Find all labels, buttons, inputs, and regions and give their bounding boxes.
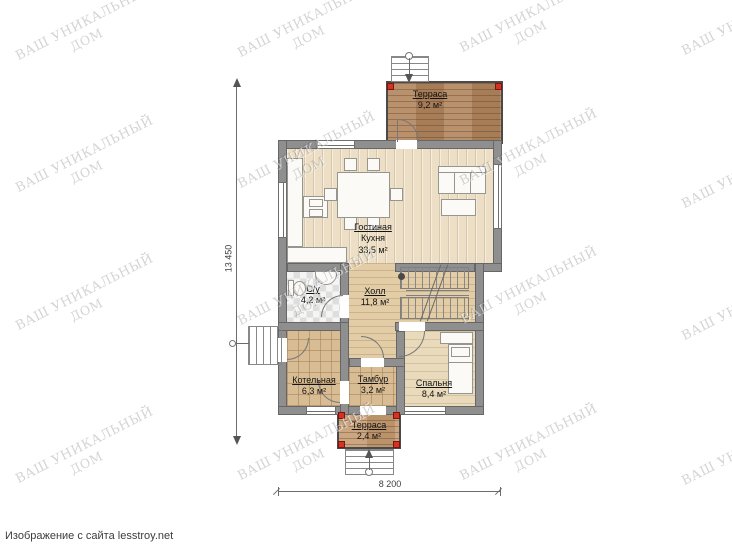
room-label-living: Гостиная Кухня 33,5 м² [325,222,421,256]
sofa-divider [454,172,455,193]
watermark-line1: ВАШ УНИКАЛЬНЫЙ [679,0,732,59]
room-label-terrace-bottom: Терраса 2,4 м² [339,420,399,443]
watermark-line1: ВАШ УНИКАЛЬНЫЙ [679,406,732,489]
staircase-hall-newel [398,273,405,280]
watermark: ВАШ УНИКАЛЬНЫЙДОМ [679,0,732,74]
room-label-hall: Холл 11,8 м² [347,286,403,309]
room-name: Гостиная [325,222,421,233]
room-name: С/у [286,284,340,295]
dimension-arrow-down [233,436,241,445]
watermark-line2: ДОМ [21,1,153,78]
room-area: 9,2 м² [390,100,470,111]
watermark-line1: ВАШ УНИКАЛЬНЫЙ [13,404,156,487]
window-boiler-bottom [306,406,336,415]
watermark: ВАШ УНИКАЛЬНЫЙДОМ [679,135,732,227]
coffee-table [441,199,476,216]
watermark-line1: ВАШ УНИКАЛЬНЫЙ [235,0,378,61]
room-name: Тамбур [347,374,399,385]
staircase-left-post [229,340,236,347]
staircase-top-arrowhead [405,74,413,83]
watermark: ВАШ УНИКАЛЬНЫЙДОМ [13,0,152,79]
watermark: ВАШ УНИКАЛЬНЫЙДОМ [457,0,596,71]
room-area: 11,8 м² [347,297,403,308]
watermark-line1: ВАШ УНИКАЛЬНЫЙ [13,251,156,334]
watermark-line2: ДОМ [243,0,375,76]
watermark-line2: ДОМ [687,0,732,74]
sofa-divider [470,172,471,193]
room-area: 33,5 м² [325,245,421,256]
staircase-top-arrow-line [409,58,410,75]
kitchen-sink-bowl [309,199,323,207]
room-area: 6,3 м² [286,386,342,397]
door-vestibule-bottom-opening [360,406,386,415]
sofa [438,166,486,194]
dimension-line-horizontal [278,491,501,492]
watermark: ВАШ УНИКАЛЬНЫЙДОМ [457,407,596,499]
window-bedroom-bottom [404,406,446,415]
chair [367,158,380,171]
source-caption: Изображение с сайта lesstroy.net [5,530,173,542]
corner-marker [338,412,345,419]
room-label-terrace-top: Терраса 9,2 м² [390,89,470,112]
room-area: 2,4 м² [339,431,399,442]
wall-right-lower [475,263,484,415]
watermark: ВАШ УНИКАЛЬНЫЙДОМ [13,257,152,349]
watermark-line2: ДОМ [687,426,732,503]
corner-marker [495,83,502,90]
chair [324,188,337,201]
dining-table [337,172,390,218]
watermark: ВАШ УНИКАЛЬНЫЙДОМ [13,119,152,211]
room-name: Терраса [339,420,399,431]
room-name-2: Кухня [325,233,421,244]
watermark-line1: ВАШ УНИКАЛЬНЫЙ [679,129,732,212]
dimension-width-label: 8 200 [355,480,425,489]
room-name: Терраса [390,89,470,100]
room-name: Холл [347,286,403,297]
room-label-boiler: Котельная 6,3 м² [286,375,342,398]
chair [390,188,403,201]
staircase-bottom-arrowhead [365,449,373,458]
room-name: Котельная [286,375,342,386]
watermark-line1: ВАШ УНИКАЛЬНЫЙ [679,261,732,344]
staircase-left-exterior [248,326,282,365]
room-label-bedroom: Спальня 8,4 м² [398,378,470,401]
wardrobe [440,332,473,344]
door-terrace-leaf [397,119,398,142]
sofa-back-line [439,172,485,173]
watermark-line2: ДОМ [687,281,732,358]
watermark: ВАШ УНИКАЛЬНЫЙДОМ [235,0,374,76]
kitchen-counter-left [287,158,303,247]
watermark: ВАШ УНИКАЛЬНЫЙДОМ [13,410,152,502]
chair [344,158,357,171]
bed-blanket-line [449,362,472,363]
watermark-line2: ДОМ [465,421,597,498]
room-name: Спальня [398,378,470,389]
watermark-line1: ВАШ УНИКАЛЬНЫЙ [13,0,156,64]
watermark-line2: ДОМ [465,0,597,71]
door-vestibule-top-opening [361,358,384,367]
window-living-right [493,164,502,229]
watermark-line1: ВАШ УНИКАЛЬНЫЙ [457,0,600,56]
room-area: 4,2 м² [286,295,340,306]
door-bedroom-opening [399,322,425,331]
corner-marker [393,412,400,419]
watermark-line2: ДОМ [687,149,732,226]
wall-under-bathroom [278,322,349,331]
watermark: ВАШ УНИКАЛЬНЫЙДОМ [679,412,732,504]
watermark: ВАШ УНИКАЛЬНЫЙДОМ [679,267,732,359]
kitchen-sink-bowl [309,209,323,217]
room-area: 8,4 м² [398,389,470,400]
dimension-arrow-up [233,78,241,87]
window-living-left [278,182,287,238]
window-living-top [317,140,355,149]
room-label-vestibule: Тамбур 3,2 м² [347,374,399,397]
floor-plan-page: { "watermark": { "line1": "ВАШ УНИКАЛЬНЫ… [0,0,732,548]
watermark-line2: ДОМ [21,271,153,348]
watermark-line2: ДОМ [465,264,597,341]
wall-top [278,140,502,149]
room-area: 3,2 м² [347,385,399,396]
watermark-line2: ДОМ [21,133,153,210]
dimension-height-label: 13 450 [225,234,234,284]
bed-pillow [451,347,470,357]
watermark-line1: ВАШ УНИКАЛЬНЫЙ [13,113,156,196]
room-label-bathroom: С/у 4,2 м² [286,284,340,307]
dimension-line-vertical [236,80,237,442]
watermark-line2: ДОМ [21,424,153,501]
